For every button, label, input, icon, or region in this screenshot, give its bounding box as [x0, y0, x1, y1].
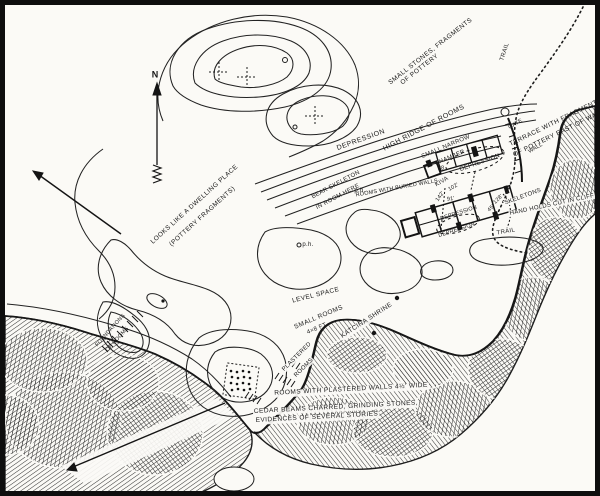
label-number-28: 28: [438, 166, 445, 172]
label-dim-91: 91': [447, 197, 455, 204]
label-pothole-1: p.h.: [302, 242, 313, 248]
direction-arrow-upper-left: [33, 171, 121, 234]
label-compass-north: N: [152, 71, 159, 80]
north-arrow: [153, 83, 161, 183]
site-map-page: SMALL STONES, FRAGMENTS OF POTTERY TRAIL…: [0, 0, 600, 496]
label-pothole-2: p.h.: [354, 188, 365, 194]
